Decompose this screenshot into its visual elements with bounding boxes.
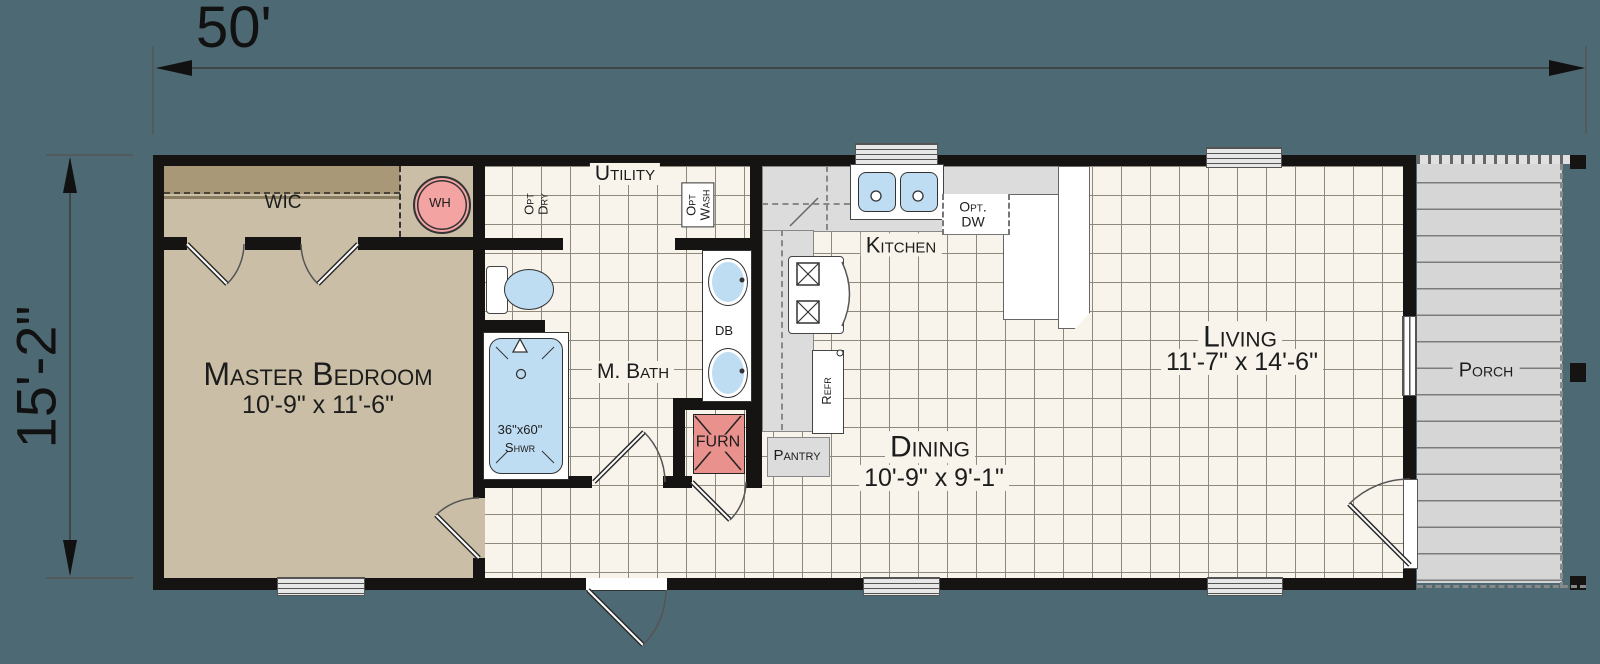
opt-wash-line1: Opt — [684, 190, 698, 221]
height-dimension-label: 15'-2" — [4, 306, 69, 449]
wall-utility-bath-b — [675, 238, 762, 250]
porch-post-mid — [1570, 363, 1586, 382]
living-window-bottom — [1207, 577, 1283, 596]
wall-furnace-left — [673, 398, 685, 488]
entry-door-threshold — [586, 578, 667, 591]
shower-size-label: 36"x60" — [498, 423, 543, 437]
bedroom-window — [277, 577, 365, 596]
range — [788, 256, 844, 334]
opt-dw-label: Opt. DW — [959, 199, 987, 228]
porch-rail-right — [1560, 164, 1563, 588]
cabinet-dash-3 — [781, 230, 783, 430]
porch-door-opening — [1403, 479, 1418, 569]
opt-dw-line2: DW — [959, 214, 987, 229]
wall-wic-c — [358, 237, 485, 250]
pantry-label: Pantry — [773, 448, 820, 464]
kitchen-upper-cabinets — [942, 166, 1064, 197]
living-size: 11'-7" x 14'-6" — [1161, 349, 1323, 375]
utility-label: Utility — [590, 163, 660, 185]
opt-wash-label: Opt Wash — [681, 183, 714, 228]
vanity-sink-top — [708, 258, 748, 306]
master-bedroom-label: Master Bedroom — [203, 358, 432, 392]
porch-edge-trim — [1417, 155, 1586, 164]
kitchen-base-counter — [1003, 194, 1060, 320]
width-dimension-label: 50' — [196, 0, 272, 61]
sink-basin-left — [858, 172, 896, 212]
furnace-label: FURN — [694, 435, 742, 452]
wic-shelf — [164, 166, 400, 194]
living-window-top — [1206, 147, 1282, 168]
dining-size: 10'-9" x 9'-1" — [859, 465, 1009, 491]
floorplan: 50' 15'-2" — [0, 0, 1600, 664]
wall-left — [153, 155, 164, 590]
kitchen-bar — [1058, 166, 1090, 329]
cabinet-dash-2 — [826, 166, 828, 230]
sink-basin-right — [900, 172, 938, 212]
opt-dry-line2: Dry — [536, 193, 550, 215]
wall-bedroom-vert-stub — [473, 558, 485, 590]
opt-dry-line1: Opt — [522, 193, 536, 215]
db-label: DB — [715, 324, 733, 338]
wh-label: WH — [429, 196, 451, 210]
refr-label: Refr — [820, 377, 834, 404]
wic-label: WIC — [265, 193, 302, 213]
m-bath-label: M. Bath — [592, 361, 674, 383]
opt-wash-line2: Wash — [698, 190, 712, 221]
porch-post-top — [1570, 155, 1586, 169]
shower-label: Shwr — [505, 441, 535, 455]
wh-closet-divider — [399, 166, 401, 237]
opt-dw-line1: Opt. — [959, 199, 987, 214]
opt-dry-label: Opt Dry — [522, 193, 549, 215]
wall-furnace-right — [746, 398, 762, 488]
wall-wic-a — [153, 237, 187, 250]
dining-label: Dining — [885, 431, 975, 463]
wall-wic-b — [245, 237, 301, 250]
width-dimension — [153, 46, 1586, 134]
porch-rail-bottom — [1417, 585, 1586, 588]
master-bedroom-size: 10'-9" x 11'-6" — [242, 392, 394, 418]
toilet-bowl — [504, 269, 554, 310]
wall-utility-bath-a — [485, 238, 563, 250]
porch-label: Porch — [1453, 361, 1520, 382]
living-porch-window — [1402, 316, 1417, 396]
kitchen-label: Kitchen — [861, 233, 942, 256]
wall-toilet-nook — [473, 320, 545, 332]
dining-window — [863, 577, 940, 596]
entry-door — [588, 590, 666, 645]
vanity-sink-bottom — [708, 348, 748, 398]
